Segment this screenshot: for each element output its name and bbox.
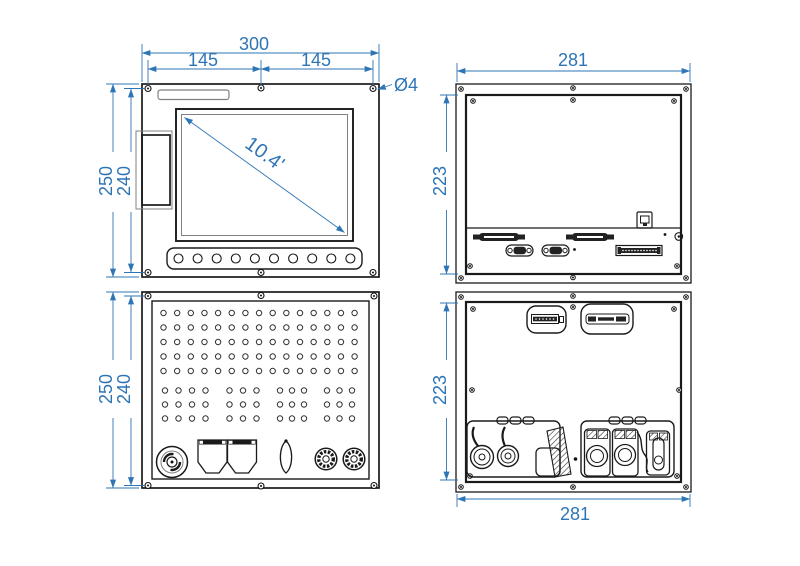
mount-hole-icon (258, 270, 264, 276)
gland-connector-icon (585, 429, 611, 476)
gland-connector-icon (613, 429, 649, 476)
vent-hole-grid (161, 310, 357, 421)
mount-hole-icon (370, 270, 376, 276)
gland-connector-icon (647, 431, 670, 475)
cable-entry-box-right (581, 417, 674, 477)
indicator-dot (664, 233, 667, 236)
front-view-display-unit: 10.4' 300 145 145 Ø4 250 (96, 34, 418, 277)
dim-250-top-label: 250 (96, 166, 116, 196)
mount-hole-icon (370, 86, 376, 92)
circular-cable-connector-icon (498, 427, 519, 467)
hatched-strain-relief (547, 427, 571, 477)
dim-145-left-label: 145 (188, 50, 218, 70)
rear-panel-outline (456, 84, 691, 283)
twist-lock-connector-icon (157, 447, 188, 478)
round-connector-icon (315, 448, 337, 470)
ethernet-jack-inner (641, 216, 650, 223)
side-slot-cover (142, 135, 170, 205)
rear-bottom-outline (456, 292, 691, 492)
mount-hole-icon (145, 270, 151, 276)
top-vent-slot (158, 90, 229, 100)
screen-diagonal-arrow (185, 118, 345, 233)
rear-view-vented-unit: 223 281 (430, 292, 691, 524)
rear-bottom-dimensions: 223 281 (430, 303, 690, 524)
mount-hole-icon (145, 86, 151, 92)
db9-connector-icon (542, 245, 569, 256)
dim-145-right-label: 145 (301, 50, 331, 70)
front-buttons (174, 254, 355, 263)
mount-hole-icon (258, 85, 264, 91)
technical-drawing-canvas: 10.4' 300 145 145 Ø4 250 (0, 0, 800, 566)
ethernet-jack-clip (643, 223, 647, 227)
dim-281-top-label: 281 (558, 50, 588, 70)
io-connectors (473, 212, 683, 256)
dim-240-top-label: 240 (114, 166, 134, 196)
covered-socket-icon (198, 440, 227, 473)
rear-view-display-unit: 281 223 (430, 50, 691, 283)
db9-connector-icon (506, 245, 533, 256)
dim-total-width-label: 300 (239, 34, 269, 54)
front-view-vented-unit: 250 240 (96, 292, 379, 489)
dim-223-top-label: 223 (430, 166, 450, 196)
toggle-switch-icon (280, 439, 291, 473)
front-bottom-dimensions: 250 240 (96, 292, 145, 488)
cable-entry-box-left (467, 417, 577, 477)
round-connector-icon (343, 448, 365, 470)
dim-223-bottom-label: 223 (430, 375, 450, 405)
dim-250-bottom-label: 250 (96, 374, 116, 404)
screen-diagonal-label: 10.4' (241, 133, 289, 176)
hole-diameter-label: Ø4 (394, 75, 418, 95)
indicator-dot (573, 248, 576, 251)
dim-281-bottom-label: 281 (560, 504, 590, 524)
circular-cable-connector-icon (471, 427, 494, 469)
covered-socket-icon (228, 440, 257, 473)
rear-inner-panel (466, 95, 681, 274)
dim-240-bottom-label: 240 (114, 374, 134, 404)
indicator-dot (574, 457, 578, 461)
front-button-bar (167, 248, 362, 269)
top-cutouts (527, 304, 633, 334)
pin-header-connector-icon (616, 246, 662, 256)
bottom-connector-row (157, 439, 365, 477)
